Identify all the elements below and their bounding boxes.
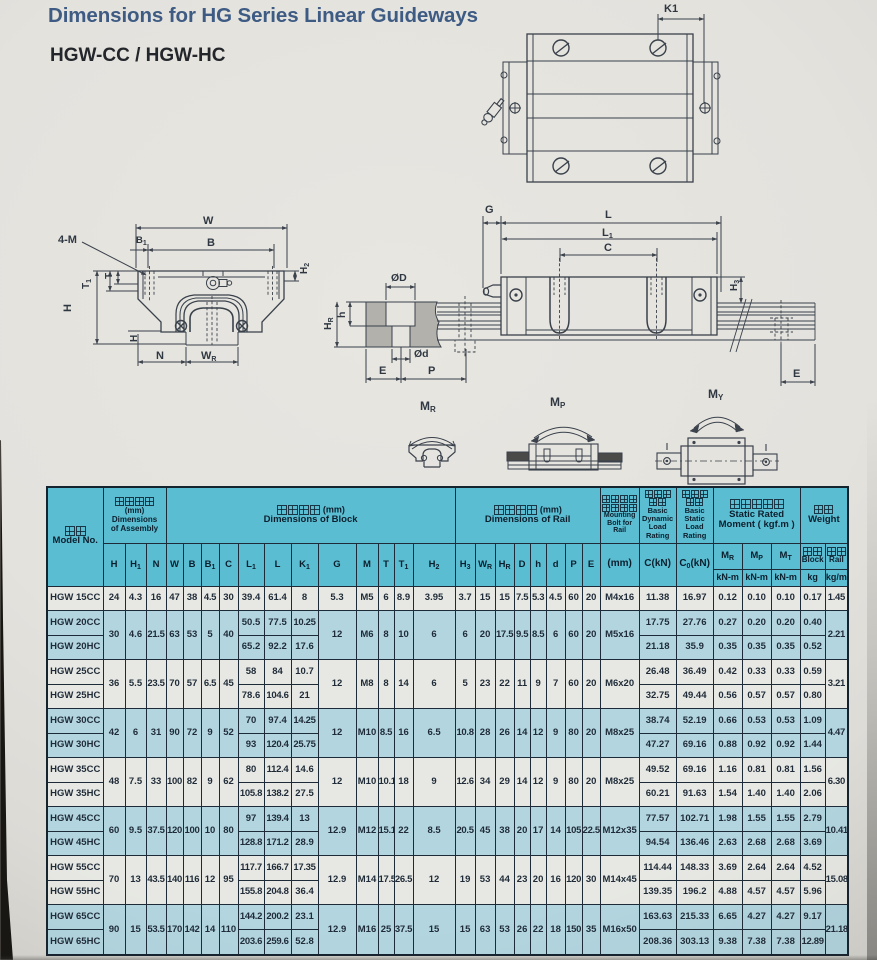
svg-text:P: P <box>428 365 435 377</box>
svg-text:H3: H3 <box>729 280 741 291</box>
svg-text:N: N <box>156 350 164 362</box>
svg-text:T1: T1 <box>81 279 93 289</box>
svg-text:E: E <box>793 368 800 380</box>
svg-text:HR: HR <box>322 317 335 330</box>
svg-text:MR: MR <box>420 399 436 414</box>
svg-text:B: B <box>207 237 215 249</box>
svg-text:C: C <box>604 242 612 254</box>
svg-text:h: h <box>336 312 348 318</box>
svg-text:H2: H2 <box>299 263 311 274</box>
svg-text:ØD: ØD <box>391 272 407 284</box>
svg-text:G: G <box>485 204 494 216</box>
svg-text:L1: L1 <box>602 227 613 240</box>
svg-text:MY: MY <box>708 387 724 402</box>
svg-text:H: H <box>62 304 74 312</box>
svg-text:L: L <box>605 209 612 221</box>
svg-text:W: W <box>203 215 214 227</box>
svg-text:K1: K1 <box>664 3 678 15</box>
svg-text:WR: WR <box>201 350 216 363</box>
svg-text:E: E <box>379 365 386 377</box>
svg-text:B1: B1 <box>136 235 147 247</box>
svg-text:4-M: 4-M <box>58 234 77 246</box>
svg-text:T: T <box>104 273 115 279</box>
svg-text:MP: MP <box>550 395 566 410</box>
svg-text:Ød: Ød <box>414 348 429 360</box>
